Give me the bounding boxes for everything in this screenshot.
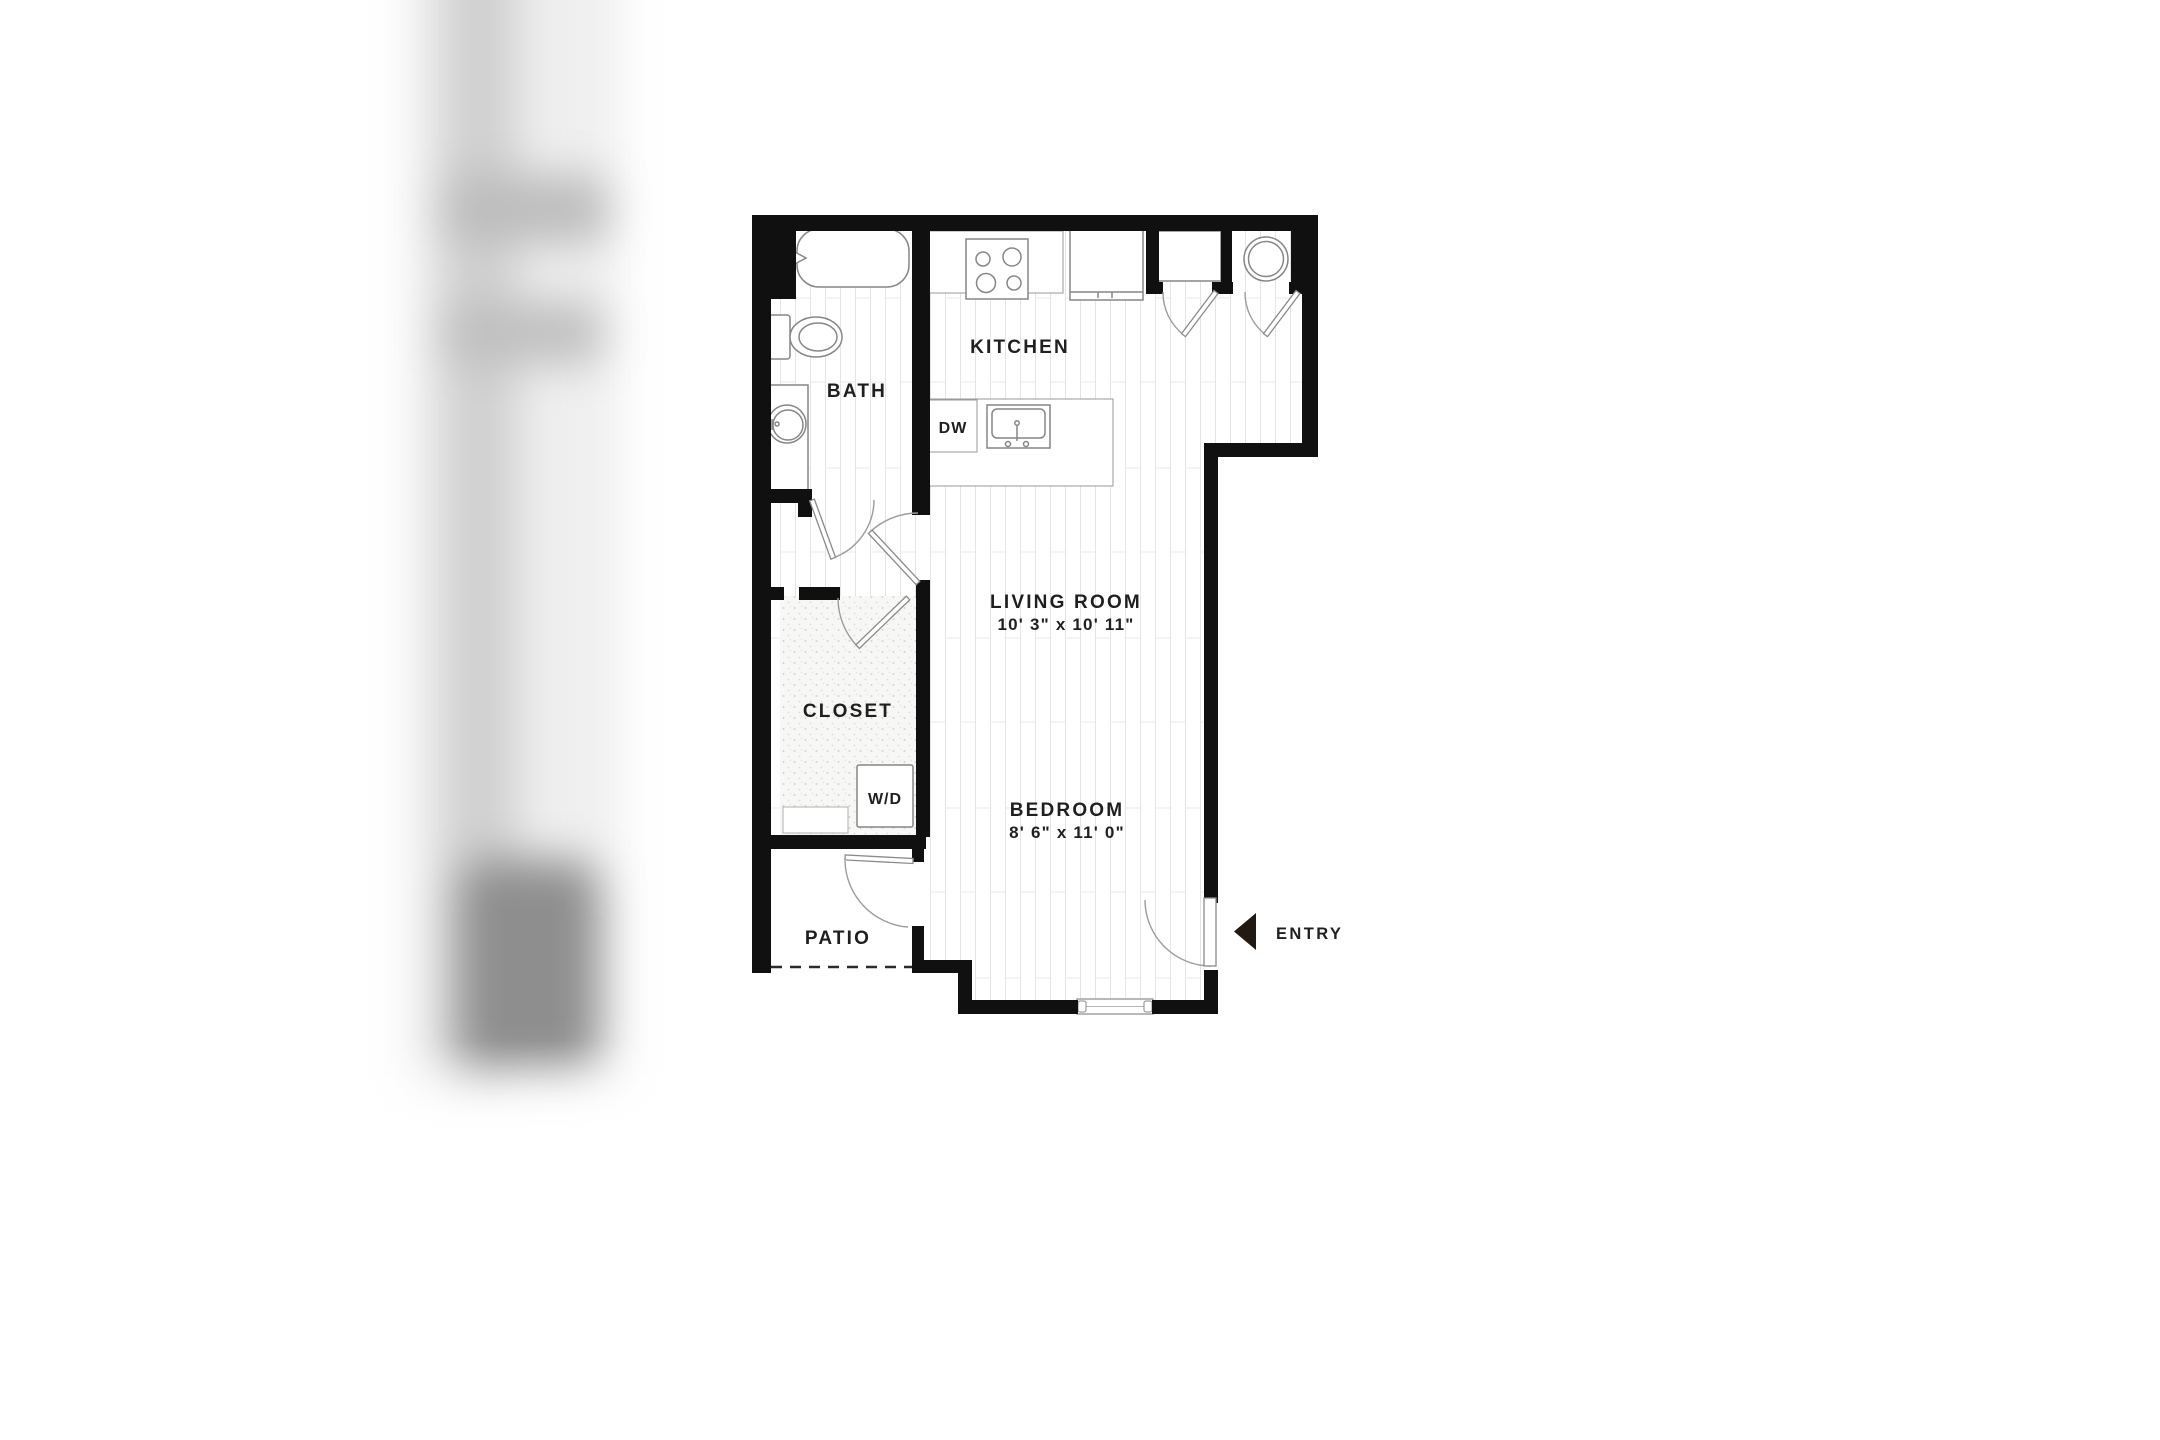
wall-corner-block [752, 215, 796, 299]
room-label-patio: PATIO [805, 928, 871, 949]
burner [1007, 276, 1021, 290]
wall-right-upper [1302, 215, 1318, 457]
refrigerator [1070, 229, 1143, 300]
wall-closet-right [916, 580, 930, 837]
living-room-dimensions: 10' 3" x 10' 11" [998, 615, 1135, 634]
room-label-bedroom: BEDROOM [1010, 800, 1125, 821]
wall-bottom-right [1152, 1000, 1218, 1014]
bedroom-window [1077, 999, 1153, 1014]
closet-shelf [783, 807, 848, 833]
burner [977, 274, 996, 293]
room-label-kitchen: KITCHEN [970, 337, 1070, 358]
wall-right-mid [1204, 443, 1218, 903]
burner [1003, 248, 1021, 266]
stove [966, 239, 1028, 299]
burner [976, 252, 990, 266]
wall-hall-bottom-a [769, 587, 784, 600]
entry-door-leaf [1204, 898, 1216, 966]
floor-plan: KITCHEN BATH DW LIVING ROOM 10' 3" x 10'… [0, 0, 2160, 1440]
wall-patio-right-stub [912, 848, 924, 862]
wall-bottom-left [958, 1000, 1078, 1014]
wall-alcove-pier [1291, 226, 1303, 284]
photo-viewer-canvas: KITCHEN BATH DW LIVING ROOM 10' 3" x 10'… [0, 0, 2160, 1440]
wall-alcove-pier [1146, 226, 1159, 284]
kitchen-faucet-handle [1006, 442, 1011, 447]
label-dishwasher: DW [939, 420, 968, 437]
wall-alcove-pier [1221, 226, 1232, 284]
wall-bath-right [912, 215, 930, 515]
toilet-tank [769, 315, 790, 359]
kitchen-faucet-dot [1015, 421, 1019, 425]
bedroom-dimensions: 8' 6" x 11' 0" [1009, 823, 1125, 842]
room-label-bath: BATH [827, 381, 887, 402]
kitchen-faucet-handle [1024, 442, 1029, 447]
label-washer-dryer: W/D [868, 791, 902, 808]
toilet-bowl-inner [799, 323, 837, 351]
utility-shelf [1158, 231, 1221, 281]
wall-jamb-nub [1146, 282, 1163, 294]
entry-label: ENTRY [1276, 925, 1343, 943]
water-heater-inner [1249, 242, 1284, 277]
bath-faucet-dot [775, 422, 779, 426]
wall-step-vertical [958, 971, 972, 1014]
wall-left [752, 215, 771, 973]
room-label-closet: CLOSET [803, 701, 893, 722]
entry-arrow-icon [1234, 913, 1256, 950]
wall-top [752, 215, 1318, 231]
wall-step [1204, 443, 1318, 457]
room-label-living-room: LIVING ROOM [990, 592, 1142, 613]
wall-patio-right-lower [912, 926, 924, 962]
bathtub [797, 229, 909, 287]
wall-hall-bottom-b [799, 587, 840, 600]
wall-patio-top [752, 835, 926, 849]
